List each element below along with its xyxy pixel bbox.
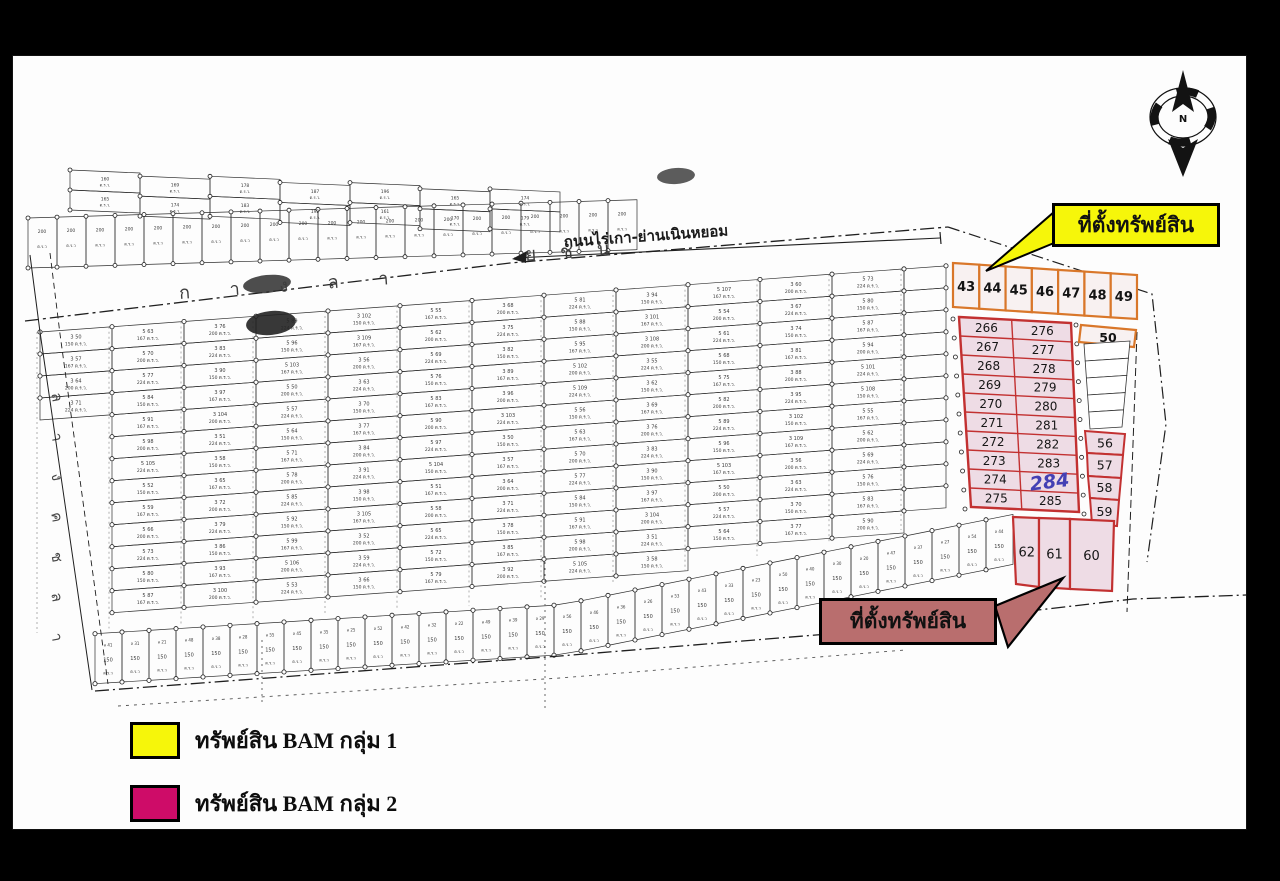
svg-text:167 ต.ร.ว.: 167 ต.ร.ว.	[569, 437, 591, 443]
svg-text:5 103: 5 103	[285, 363, 299, 369]
svg-text:ต.ร.ว: ต.ร.ว	[778, 600, 788, 605]
svg-text:150: 150	[130, 656, 140, 662]
plot-277-number: 277	[1032, 343, 1055, 357]
svg-text:167 ต.ร.ว.: 167 ต.ร.ว.	[209, 573, 231, 579]
svg-text:150 ต.ร.ว.: 150 ต.ร.ว.	[785, 333, 807, 339]
svg-text:3 102: 3 102	[789, 414, 803, 420]
svg-text:ล 49: ล 49	[482, 619, 491, 624]
svg-text:150 ต.ร.ว.: 150 ต.ร.ว.	[353, 584, 375, 590]
svg-text:224 ต.ร.ว.: 224 ต.ร.ว.	[497, 420, 519, 426]
svg-text:150 ต.ร.ว.: 150 ต.ร.ว.	[497, 442, 519, 448]
svg-text:224 ต.ร.ว.: 224 ต.ร.ว.	[497, 508, 519, 514]
canal-letter: า	[47, 431, 66, 442]
svg-text:61: 61	[1046, 547, 1063, 562]
svg-text:167 ต.ร.ว.: 167 ต.ร.ว.	[785, 531, 807, 537]
svg-text:200 ต.ร.ว.: 200 ต.ร.ว.	[209, 419, 231, 425]
svg-text:150 ต.ร.ว.: 150 ต.ร.ว.	[137, 402, 159, 408]
svg-text:57: 57	[1097, 458, 1113, 473]
svg-text:167 ต.ร.ว.: 167 ต.ร.ว.	[425, 579, 447, 585]
svg-text:3 55: 3 55	[646, 358, 657, 364]
svg-text:200 ต.ร.ว.: 200 ต.ร.ว.	[137, 446, 159, 452]
plot-268-number: 268	[977, 359, 1000, 373]
svg-text:150 ต.ร.ว.: 150 ต.ร.ว.	[785, 421, 807, 427]
svg-text:5 73: 5 73	[142, 549, 153, 555]
svg-text:5 104: 5 104	[429, 462, 443, 468]
svg-text:150 ต.ร.ว.: 150 ต.ร.ว.	[857, 482, 879, 488]
svg-text:ต.ร.ว: ต.ร.ว	[346, 656, 356, 661]
svg-text:150: 150	[967, 549, 977, 555]
svg-text:200: 200	[386, 219, 395, 225]
svg-text:150 ต.ร.ว.: 150 ต.ร.ว.	[641, 299, 663, 305]
svg-text:3 96: 3 96	[502, 391, 513, 397]
plot-280-number: 280	[1034, 400, 1057, 414]
svg-text:167 ต.ร.ว.: 167 ต.ร.ว.	[137, 512, 159, 518]
svg-text:200 ต.ร.ว.: 200 ต.ร.ว.	[137, 534, 159, 540]
legend: ทรัพย์สิน BAM กลุ่ม 1 ทรัพย์สิน BAM กลุ่…	[130, 722, 397, 822]
svg-text:167 ต.ร.ว.: 167 ต.ร.ว.	[497, 464, 519, 470]
svg-text:62: 62	[1018, 546, 1035, 561]
svg-text:200 ต.ร.ว.: 200 ต.ร.ว.	[857, 526, 879, 532]
svg-text:ต.ร.ว: ต.ร.ว	[427, 651, 437, 656]
svg-text:ล 37: ล 37	[914, 545, 923, 550]
legend-item-group2: ทรัพย์สิน BAM กลุ่ม 2	[130, 785, 397, 822]
svg-text:200 ต.ร.ว.: 200 ต.ร.ว.	[65, 385, 87, 391]
svg-text:ต.ร.ว: ต.ร.ว	[508, 646, 518, 651]
svg-text:224 ต.ร.ว.: 224 ต.ร.ว.	[209, 529, 231, 535]
svg-text:3 109: 3 109	[789, 436, 803, 442]
svg-text:ต.ร.ว: ต.ร.ว	[724, 611, 734, 616]
svg-text:3 92: 3 92	[502, 567, 513, 573]
svg-text:150: 150	[427, 638, 437, 644]
svg-text:167 ต.ร.ว.: 167 ต.ร.ว.	[785, 443, 807, 449]
svg-text:5 92: 5 92	[286, 517, 297, 523]
canal-letter: ช	[47, 551, 66, 564]
svg-text:150: 150	[211, 651, 221, 657]
plot-278-number: 278	[1033, 362, 1056, 376]
svg-text:3 95: 3 95	[790, 392, 801, 398]
svg-text:200 ต.ร.ว.: 200 ต.ร.ว.	[785, 465, 807, 471]
svg-text:150: 150	[859, 571, 869, 577]
plot-49-number: 49	[1115, 290, 1133, 305]
svg-text:150: 150	[319, 644, 329, 650]
svg-text:150 ต.ร.ว.: 150 ต.ร.ว.	[497, 530, 519, 536]
svg-text:200 ต.ร.ว.: 200 ต.ร.ว.	[497, 574, 519, 580]
svg-text:3 57: 3 57	[502, 457, 513, 463]
svg-text:5 90: 5 90	[862, 519, 873, 525]
svg-text:5 55: 5 55	[430, 308, 441, 314]
highlighted-plots: 4344454647484950266276267277268278269279…	[953, 263, 1137, 591]
svg-text:ล 54: ล 54	[968, 534, 977, 539]
svg-text:200: 200	[241, 223, 250, 229]
svg-text:200: 200	[212, 224, 221, 230]
svg-text:3 76: 3 76	[214, 324, 225, 330]
svg-text:5 77: 5 77	[142, 373, 153, 379]
svg-text:150 ต.ร.ว.: 150 ต.ร.ว.	[137, 578, 159, 584]
svg-text:5 64: 5 64	[718, 529, 729, 535]
svg-text:150 ต.ร.ว.: 150 ต.ร.ว.	[353, 320, 375, 326]
plot-47-number: 47	[1062, 287, 1080, 302]
svg-text:150 ต.ร.ว.: 150 ต.ร.ว.	[857, 306, 879, 312]
svg-text:150: 150	[481, 634, 491, 640]
svg-text:5 77: 5 77	[574, 474, 585, 480]
plot-46-number: 46	[1036, 285, 1054, 300]
svg-text:ล 21: ล 21	[158, 639, 167, 644]
svg-text:3 94: 3 94	[646, 292, 657, 298]
svg-text:5 84: 5 84	[142, 395, 153, 401]
legend-swatch-group2	[130, 785, 180, 822]
svg-text:150 ต.ร.ว.: 150 ต.ร.ว.	[425, 469, 447, 475]
svg-text:ต.ร.ว: ต.ร.ว	[157, 667, 167, 672]
svg-text:5 88: 5 88	[574, 320, 585, 326]
svg-text:224 ต.ร.ว.: 224 ต.ร.ว.	[785, 311, 807, 317]
plot-285-number: 285	[1039, 494, 1062, 508]
svg-text:3 90: 3 90	[214, 368, 225, 374]
svg-text:167 ต.ร.ว.: 167 ต.ร.ว.	[569, 525, 591, 531]
svg-text:ต.ร.ว: ต.ร.ว	[886, 578, 896, 583]
svg-text:200: 200	[154, 226, 163, 232]
svg-text:3 64: 3 64	[502, 479, 513, 485]
svg-text:3 82: 3 82	[502, 347, 513, 353]
svg-text:224 ต.ร.ว.: 224 ต.ร.ว.	[785, 487, 807, 493]
svg-text:3 51: 3 51	[214, 434, 225, 440]
svg-text:200: 200	[328, 220, 337, 226]
svg-text:5 63: 5 63	[142, 329, 153, 335]
svg-text:ต.ร.ว: ต.ร.ว	[670, 622, 680, 627]
svg-text:3 84: 3 84	[358, 445, 369, 451]
svg-text:200 ต.ร.ว.: 200 ต.ร.ว.	[857, 350, 879, 356]
svg-text:167 ต.ร.ว.: 167 ต.ร.ว.	[857, 504, 879, 510]
svg-text:3 72: 3 72	[214, 500, 225, 506]
svg-text:3 58: 3 58	[214, 456, 225, 462]
svg-text:3 74: 3 74	[790, 326, 801, 332]
svg-text:150: 150	[265, 648, 275, 654]
svg-text:3 63: 3 63	[790, 480, 801, 486]
svg-text:ล 47: ล 47	[887, 550, 896, 555]
svg-text:3 91: 3 91	[358, 467, 369, 473]
plot-266-number: 266	[975, 321, 998, 335]
svg-text:150: 150	[616, 619, 626, 625]
svg-text:ต.ร.ว: ต.ร.ว	[940, 568, 950, 573]
svg-text:167 ต.ร.ว.: 167 ต.ร.ว.	[713, 294, 735, 300]
svg-text:ล 56: ล 56	[563, 614, 572, 619]
svg-text:5 68: 5 68	[718, 353, 729, 359]
svg-text:ล 31: ล 31	[131, 641, 140, 646]
plot-276-number: 276	[1031, 324, 1054, 338]
plot-282-number: 282	[1036, 437, 1059, 451]
svg-text:ล 43: ล 43	[698, 588, 707, 593]
svg-text:167 ต.ร.ว.: 167 ต.ร.ว.	[425, 315, 447, 321]
svg-text:150: 150	[508, 633, 518, 639]
svg-text:167 ต.ร.ว.: 167 ต.ร.ว.	[209, 397, 231, 403]
canal-letter: ล	[47, 591, 66, 603]
svg-text:3 97: 3 97	[646, 490, 657, 496]
svg-text:200 ต.ร.ว.: 200 ต.ร.ว.	[281, 568, 303, 574]
svg-text:167 ต.ร.ว.: 167 ต.ร.ว.	[65, 363, 87, 369]
svg-text:5 62: 5 62	[862, 431, 873, 437]
svg-text:167 ต.ร.ว.: 167 ต.ร.ว.	[425, 491, 447, 497]
svg-text:5 84: 5 84	[574, 496, 585, 502]
svg-text:5 87: 5 87	[862, 321, 873, 327]
svg-text:3 52: 3 52	[358, 533, 369, 539]
svg-text:3 104: 3 104	[213, 412, 227, 418]
svg-text:ล 45: ล 45	[293, 631, 302, 636]
svg-text:3 56: 3 56	[358, 357, 369, 363]
svg-text:5 51: 5 51	[430, 484, 441, 490]
plot-269-number: 269	[978, 378, 1001, 392]
svg-text:3 83: 3 83	[214, 346, 225, 352]
svg-text:5 91: 5 91	[142, 417, 153, 423]
svg-text:3 58: 3 58	[646, 556, 657, 562]
svg-text:ต.ร.ว: ต.ร.ว	[184, 666, 194, 671]
svg-text:ล 33: ล 33	[725, 583, 734, 588]
svg-text:150: 150	[238, 649, 248, 655]
svg-text:150 ต.ร.ว.: 150 ต.ร.ว.	[713, 536, 735, 542]
svg-text:ล 20: ล 20	[860, 556, 869, 561]
svg-text:200: 200	[618, 212, 627, 218]
svg-text:200 ต.ร.ว.: 200 ต.ร.ว.	[857, 438, 879, 444]
svg-text:ต.ร.ว: ต.ร.ว	[589, 638, 599, 643]
svg-text:ต.ร.ว.: ต.ร.ว.	[310, 215, 321, 220]
svg-text:150 ต.ร.ว.: 150 ต.ร.ว.	[713, 360, 735, 366]
svg-text:200 ต.ร.ว.: 200 ต.ร.ว.	[353, 540, 375, 546]
plot-49: 49	[1111, 273, 1137, 319]
plot-62: 62	[1013, 517, 1039, 587]
svg-text:200: 200	[444, 217, 453, 223]
svg-text:ล 35: ล 35	[320, 629, 329, 634]
svg-text:ล 52: ล 52	[374, 626, 383, 631]
svg-text:224 ต.ร.ว.: 224 ต.ร.ว.	[281, 590, 303, 596]
svg-text:200: 200	[357, 219, 366, 225]
svg-text:ต.ร.ว: ต.ร.ว	[967, 562, 977, 567]
svg-text:5 79: 5 79	[430, 572, 441, 578]
svg-text:ต.ร.ว: ต.ร.ว	[400, 652, 410, 657]
plot-44-number: 44	[983, 282, 1001, 297]
svg-text:3 90: 3 90	[646, 468, 657, 474]
svg-text:200 ต.ร.ว.: 200 ต.ร.ว.	[785, 289, 807, 295]
svg-text:3 51: 3 51	[646, 534, 657, 540]
svg-text:3 57: 3 57	[70, 356, 81, 362]
svg-text:ล 42: ล 42	[401, 624, 410, 629]
svg-text:224 ต.ร.ว.: 224 ต.ร.ว.	[353, 562, 375, 568]
svg-text:ต.ร.ว: ต.ร.ว	[859, 584, 869, 589]
plot-267-number: 267	[976, 340, 999, 354]
svg-text:167 ต.ร.ว.: 167 ต.ร.ว.	[713, 382, 735, 388]
svg-text:200 ต.ร.ว.: 200 ต.ร.ว.	[497, 310, 519, 316]
svg-text:200 ต.ร.ว.: 200 ต.ร.ว.	[425, 513, 447, 519]
svg-text:3 109: 3 109	[357, 335, 371, 341]
svg-text:150 ต.ร.ว.: 150 ต.ร.ว.	[857, 394, 879, 400]
svg-text:ต.ร.ว.: ต.ร.ว.	[310, 195, 321, 200]
svg-text:ต.ร.ว: ต.ร.ว	[356, 234, 366, 239]
svg-text:224 ต.ร.ว.: 224 ต.ร.ว.	[713, 338, 735, 344]
svg-text:224 ต.ร.ว.: 224 ต.ร.ว.	[353, 386, 375, 392]
svg-text:200: 200	[183, 225, 192, 231]
svg-text:3 108: 3 108	[645, 336, 659, 342]
svg-text:ต.ร.ว: ต.ร.ว	[238, 662, 248, 667]
svg-text:ต.ร.ว: ต.ร.ว	[182, 240, 192, 245]
svg-text:3 85: 3 85	[502, 545, 513, 551]
svg-text:5 99: 5 99	[286, 539, 297, 545]
canal-letter: ค	[47, 511, 66, 524]
svg-text:3 63: 3 63	[358, 379, 369, 385]
svg-text:3 81: 3 81	[790, 348, 801, 354]
svg-text:224 ต.ร.ว.: 224 ต.ร.ว.	[641, 453, 663, 459]
svg-text:200: 200	[270, 222, 279, 228]
svg-text:5 55: 5 55	[862, 409, 873, 415]
legend-item-group1: ทรัพย์สิน BAM กลุ่ม 1	[130, 722, 397, 759]
svg-text:5 89: 5 89	[718, 419, 729, 425]
svg-text:150 ต.ร.ว.: 150 ต.ร.ว.	[65, 341, 87, 347]
svg-text:3 69: 3 69	[646, 402, 657, 408]
svg-text:167 ต.ร.ว.: 167 ต.ร.ว.	[497, 376, 519, 382]
svg-text:ล 29: ล 29	[536, 616, 545, 621]
svg-text:3 88: 3 88	[790, 370, 801, 376]
svg-text:ต.ร.ว: ต.ร.ว	[472, 231, 482, 236]
svg-text:ต.ร.ว: ต.ร.ว	[240, 238, 250, 243]
svg-text:ต.ร.ว: ต.ร.ว	[832, 589, 842, 594]
svg-text:150 ต.ร.ว.: 150 ต.ร.ว.	[353, 496, 375, 502]
svg-text:ต.ร.ว: ต.ร.ว	[530, 229, 540, 234]
plot-60: 60	[1070, 519, 1114, 591]
svg-text:ต.ร.ว.: ต.ร.ว.	[100, 203, 111, 208]
svg-text:ต.ร.ว: ต.ร.ว	[501, 230, 511, 235]
svg-text:150 ต.ร.ว.: 150 ต.ร.ว.	[209, 375, 231, 381]
svg-text:200 ต.ร.ว.: 200 ต.ร.ว.	[641, 519, 663, 525]
svg-text:ล 44: ล 44	[995, 529, 1004, 534]
svg-text:3 100: 3 100	[213, 588, 227, 594]
svg-text:5 107: 5 107	[717, 287, 731, 293]
svg-text:5 71: 5 71	[286, 451, 297, 457]
svg-text:200: 200	[589, 212, 598, 218]
svg-text:224 ต.ร.ว.: 224 ต.ร.ว.	[713, 514, 735, 520]
svg-text:5 91: 5 91	[574, 518, 585, 524]
svg-text:150: 150	[994, 544, 1004, 550]
svg-text:5 94: 5 94	[862, 343, 873, 349]
canal-letter: ง	[47, 472, 66, 482]
svg-text:ล 26: ล 26	[644, 599, 653, 604]
svg-text:5 96: 5 96	[718, 441, 729, 447]
svg-text:150 ต.ร.ว.: 150 ต.ร.ว.	[569, 503, 591, 509]
plot-61: 61	[1039, 518, 1070, 589]
svg-text:224 ต.ร.ว.: 224 ต.ร.ว.	[569, 481, 591, 487]
svg-text:150: 150	[697, 603, 707, 609]
svg-text:200 ต.ร.ว.: 200 ต.ร.ว.	[353, 452, 375, 458]
svg-text:150 ต.ร.ว.: 150 ต.ร.ว.	[497, 354, 519, 360]
svg-text:5 80: 5 80	[142, 571, 153, 577]
svg-text:ต.ร.ว.: ต.ร.ว.	[520, 201, 531, 206]
plot-270-number: 270	[979, 397, 1002, 411]
svg-text:ต.ร.ว: ต.ร.ว	[37, 244, 47, 249]
svg-text:200 ต.ร.ว.: 200 ต.ร.ว.	[785, 377, 807, 383]
svg-text:ล 48: ล 48	[185, 638, 194, 643]
svg-text:3 79: 3 79	[214, 522, 225, 528]
svg-text:167 ต.ร.ว.: 167 ต.ร.ว.	[137, 600, 159, 606]
svg-text:200 ต.ร.ว.: 200 ต.ร.ว.	[641, 343, 663, 349]
svg-text:150: 150	[184, 653, 194, 659]
svg-text:3 60: 3 60	[790, 282, 801, 288]
svg-text:ล 41: ล 41	[104, 643, 113, 648]
svg-text:200 ต.ร.ว.: 200 ต.ร.ว.	[281, 392, 303, 398]
svg-text:150 ต.ร.ว.: 150 ต.ร.ว.	[137, 490, 159, 496]
svg-text:ต.ร.ว.: ต.ร.ว.	[240, 189, 251, 194]
callout-property-location-top: ที่ตั้งทรัพย์สิน	[1052, 203, 1220, 247]
svg-text:150 ต.ร.ว.: 150 ต.ร.ว.	[281, 436, 303, 442]
svg-text:224 ต.ร.ว.: 224 ต.ร.ว.	[497, 332, 519, 338]
svg-text:200 ต.ร.ว.: 200 ต.ร.ว.	[209, 595, 231, 601]
svg-text:200: 200	[502, 215, 511, 221]
svg-text:3 66: 3 66	[358, 577, 369, 583]
svg-text:150 ต.ร.ว.: 150 ต.ร.ว.	[641, 475, 663, 481]
svg-text:ล 25: ล 25	[347, 628, 356, 633]
plot-281-number: 281	[1035, 419, 1058, 433]
svg-text:ต.ร.ว.: ต.ร.ว.	[100, 183, 111, 188]
svg-text:ต.ร.ว: ต.ร.ว	[454, 649, 464, 654]
plot-43-number: 43	[957, 280, 975, 295]
svg-text:224 ต.ร.ว.: 224 ต.ร.ว.	[137, 380, 159, 386]
svg-text:200: 200	[38, 229, 47, 235]
svg-text:150: 150	[751, 592, 761, 598]
svg-text:5 53: 5 53	[286, 583, 297, 589]
svg-text:200: 200	[415, 218, 424, 224]
svg-text:150: 150	[562, 629, 572, 635]
svg-text:ต.ร.ว: ต.ร.ว	[697, 616, 707, 621]
svg-text:3 68: 3 68	[502, 303, 513, 309]
svg-text:5 76: 5 76	[430, 374, 441, 380]
svg-text:ต.ร.ว: ต.ร.ว	[373, 654, 383, 659]
svg-text:5 80: 5 80	[862, 299, 873, 305]
svg-text:5 57: 5 57	[286, 407, 297, 413]
plot-47: 47	[1058, 270, 1084, 316]
svg-text:ล 36: ล 36	[617, 604, 626, 609]
svg-text:150: 150	[670, 609, 680, 615]
svg-text:5 96: 5 96	[286, 341, 297, 347]
svg-text:150: 150	[886, 565, 896, 571]
svg-text:150: 150	[778, 587, 788, 593]
svg-text:167 ต.ร.ว.: 167 ต.ร.ว.	[353, 518, 375, 524]
plot-283-number: 283	[1037, 456, 1060, 470]
svg-text:224 ต.ร.ว.: 224 ต.ร.ว.	[137, 556, 159, 562]
svg-text:5 72: 5 72	[430, 550, 441, 556]
plot-44: 44	[979, 265, 1005, 311]
svg-text:ต.ร.ว: ต.ร.ว	[130, 669, 140, 674]
svg-text:3 103: 3 103	[501, 413, 515, 419]
svg-text:5 62: 5 62	[430, 330, 441, 336]
svg-text:3 97: 3 97	[214, 390, 225, 396]
svg-text:ล 40: ล 40	[806, 567, 815, 572]
legend-swatch-group1	[130, 722, 180, 759]
svg-text:167 ต.ร.ว.: 167 ต.ร.ว.	[353, 430, 375, 436]
svg-text:224 ต.ร.ว.: 224 ต.ร.ว.	[425, 535, 447, 541]
svg-text:5 52: 5 52	[142, 483, 153, 489]
svg-text:150: 150	[589, 625, 599, 631]
svg-text:150: 150	[157, 654, 167, 660]
svg-text:ต.ร.ว: ต.ร.ว	[265, 661, 275, 666]
svg-text:ต.ร.ว.: ต.ร.ว.	[170, 209, 181, 214]
svg-text:ล 22: ล 22	[455, 621, 464, 626]
svg-text:ต.ร.ว: ต.ร.ว	[535, 644, 545, 649]
svg-text:ล 53: ล 53	[671, 594, 680, 599]
svg-text:150: 150	[535, 631, 545, 637]
svg-text:200: 200	[96, 227, 105, 233]
svg-text:ต.ร.ว.: ต.ร.ว.	[520, 221, 531, 226]
svg-text:3 67: 3 67	[790, 304, 801, 310]
svg-text:5 83: 5 83	[862, 497, 873, 503]
callout-property-location-bottom: ที่ตั้งทรัพย์สิน	[819, 598, 997, 645]
canal-letter: า	[47, 631, 66, 642]
svg-text:ต.ร.ว: ต.ร.ว	[751, 605, 761, 610]
svg-text:59: 59	[1097, 504, 1113, 519]
svg-text:ล 28: ล 28	[239, 634, 248, 639]
